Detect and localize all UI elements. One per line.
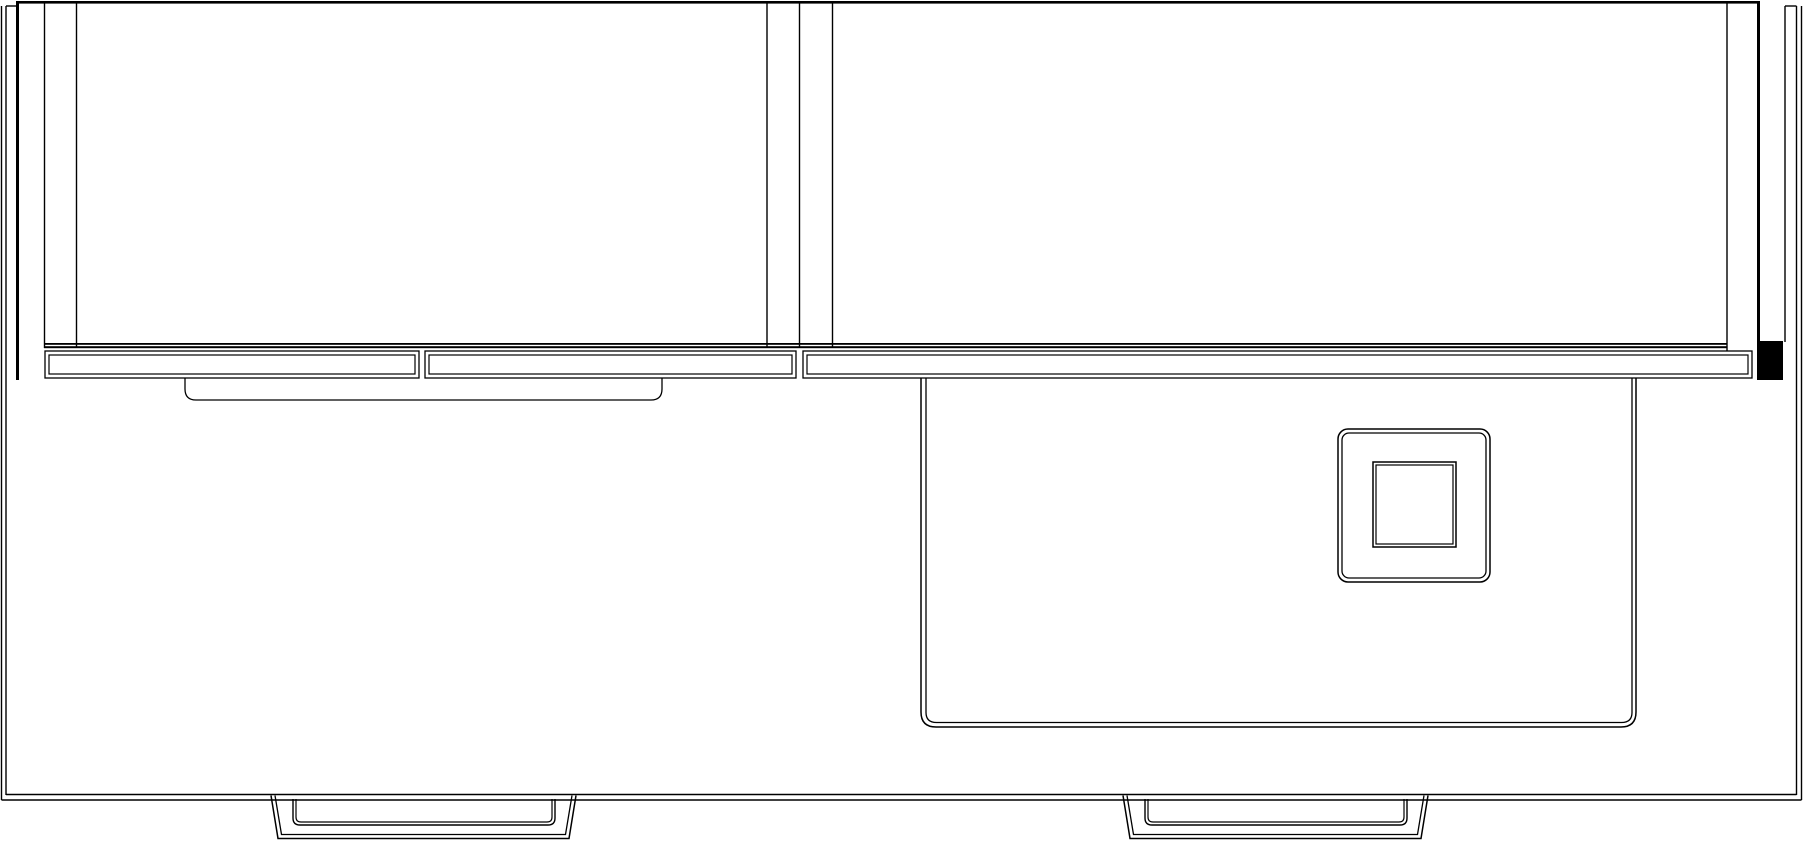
left-foot-bracket-outer [271,796,576,839]
right-foot-pad-inner [1148,799,1404,822]
left-foot-pad-inner [296,799,552,822]
right-foot-pad-outer [1145,799,1407,825]
rail-top-line-lower [44,346,1727,348]
left-foot-bracket-inner [275,796,572,835]
rail-top-line-upper [44,343,1727,345]
basin-outline-inner [926,378,1632,723]
drawer-front-1-inner [49,355,415,374]
right-side-panel-edge [1757,1,1760,343]
drain-square-outer [1373,462,1456,547]
basin-outline-outer [921,378,1636,727]
cad-drawing-canvas [0,0,1803,842]
right-foot-bracket-outer [1123,796,1428,839]
drain-square-inner [1376,465,1453,544]
drawer-front-2-inner [429,355,792,374]
technical-drawing-page [0,0,1803,842]
drain-plate-outer [1338,429,1490,582]
drawer-front-3-inner [807,355,1748,374]
handle-tray-outline [185,378,662,400]
left-side-panel-edge [16,1,19,380]
right-side-panel-end-cap [1757,341,1783,380]
drain-plate-inner [1342,433,1486,578]
right-foot-bracket-inner [1127,796,1424,835]
left-foot-pad-outer [293,799,555,825]
cabinet-top-edge [17,1,1759,4]
